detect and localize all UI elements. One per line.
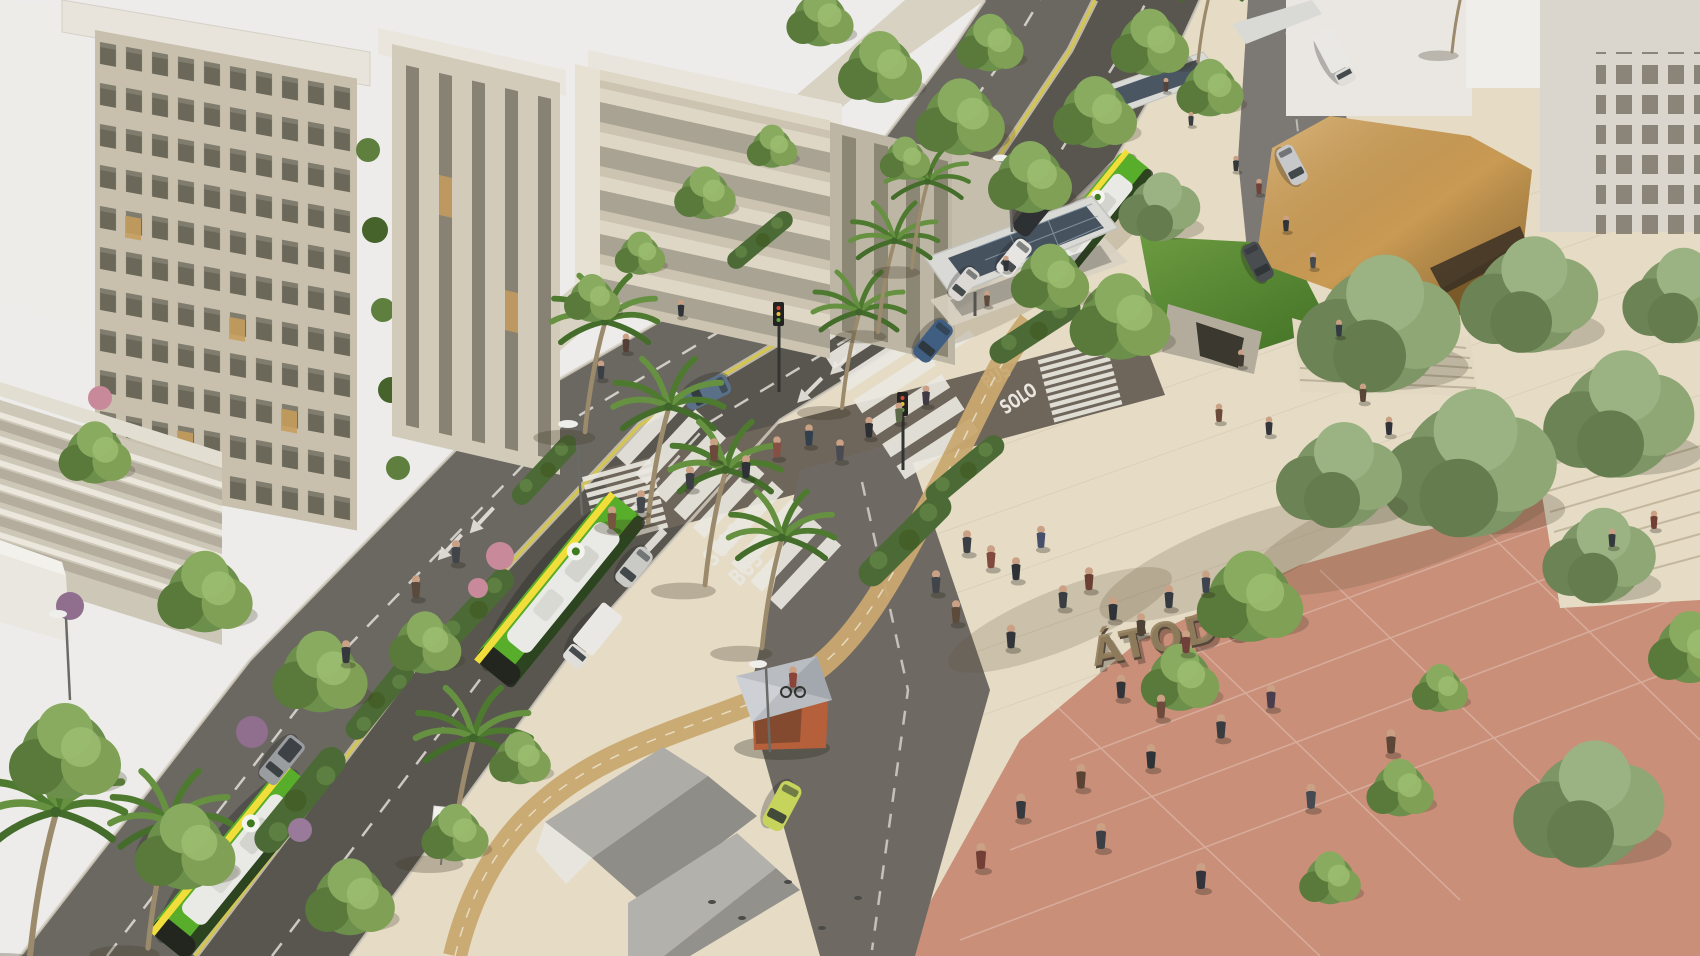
purple-shrub	[288, 818, 312, 842]
street-render-scene: SOLO BUS BUS SOLO	[0, 0, 1700, 956]
purple-shrub	[236, 716, 268, 748]
residential-tower-2	[378, 28, 566, 475]
architectural-render: SOLO BUS BUS SOLO	[0, 0, 1700, 956]
white-edge-building	[0, 0, 86, 330]
pink-flowering-shrub	[468, 578, 488, 598]
pink-flowering-shrub	[88, 386, 112, 410]
white-building-small	[1466, 0, 1544, 88]
pink-flowering-shrub	[486, 542, 514, 570]
white-tower-windows	[1596, 52, 1700, 234]
